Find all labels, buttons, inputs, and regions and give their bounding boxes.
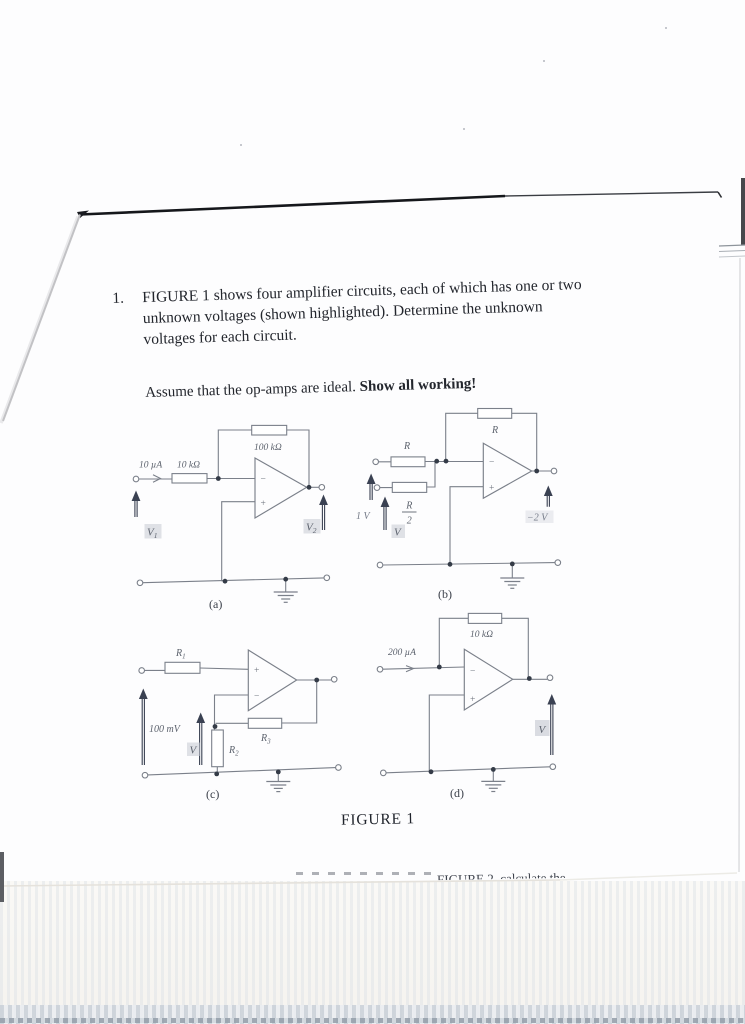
label-vin: 100 mV	[149, 724, 182, 735]
terminal-circle	[381, 770, 387, 776]
label-r-feedback: R	[491, 425, 498, 436]
problem-number: 1.	[112, 287, 143, 309]
junction-dot	[510, 562, 515, 567]
terminal-circle	[137, 580, 143, 586]
circuit-c: + − 100 mV V R1 R2 R3 (c)	[130, 638, 350, 808]
label-r-in: 10 kΩ	[177, 461, 200, 471]
circuit-b-wires	[379, 413, 555, 578]
label-1v: 1 V	[356, 511, 372, 522]
page-left-edge	[3, 215, 80, 422]
terminal-circle	[142, 772, 148, 778]
terminal-circle	[319, 485, 325, 491]
voltage-arrow-output	[544, 486, 553, 507]
resistor-feedback	[478, 409, 512, 419]
paper-stack-edge-dark	[741, 178, 745, 245]
opamp-plus: +	[261, 499, 266, 509]
label-r2: R2	[228, 745, 239, 758]
terminal-circle	[377, 562, 383, 568]
figure-caption: FIGURE 1	[341, 810, 415, 830]
opamp-plus: +	[470, 695, 475, 705]
junction-dot	[283, 577, 288, 582]
scan-left-sliver	[0, 852, 4, 902]
opamp-minus: −	[470, 667, 475, 677]
fraction-numerator: R	[405, 501, 412, 512]
terminal-circle	[139, 668, 145, 674]
opamp-plus: +	[254, 666, 259, 676]
junction-dot	[534, 469, 539, 474]
terminal-circle	[550, 764, 556, 770]
junction-dot	[434, 459, 439, 464]
assumption-bold: Show all working!	[359, 376, 476, 395]
resistor-r3	[248, 718, 281, 728]
terminal-circle	[551, 468, 557, 474]
page-bottom-edge	[0, 880, 560, 886]
junction-dot	[276, 770, 281, 775]
circuit-a: − + V1 V2 10 µA 10 kΩ 100 kΩ (a)	[115, 405, 350, 617]
label-r1: R1	[175, 648, 186, 661]
label-r-feedback: 100 kΩ	[254, 443, 282, 453]
page-left-edge-glow	[1, 217, 78, 424]
junction-dot	[213, 724, 218, 729]
junction-dot	[448, 562, 453, 567]
junction-dot	[429, 769, 434, 774]
resistor-r2	[212, 730, 224, 767]
resistor-feedback	[252, 425, 287, 435]
page-right-edge	[739, 258, 740, 872]
voltage-arrow-node	[196, 713, 205, 766]
voltage-arrow-inner	[381, 497, 390, 531]
junction-dot	[214, 772, 219, 777]
page-top-edge-shadow-right	[505, 192, 718, 196]
label-r3: R3	[260, 733, 271, 746]
circuit-d-wires	[383, 618, 550, 781]
fraction-denominator: 2	[407, 516, 412, 527]
junction-dot	[307, 485, 312, 490]
cutoff-text-noise	[296, 872, 434, 875]
junction-dot	[216, 476, 221, 481]
terminal-circle	[324, 575, 330, 581]
terminal-circle	[555, 560, 561, 566]
ground-icon	[500, 578, 524, 588]
circuit-d: − + V 200 µA 10 kΩ (d)	[375, 603, 560, 808]
opamp-plus: +	[489, 484, 494, 494]
circuit-a-tag: (a)	[209, 597, 222, 611]
circuit-a-wires	[139, 430, 324, 592]
label-r-feedback: 10 kΩ	[470, 630, 493, 640]
junction-dot	[223, 579, 228, 584]
circuit-d-tag: (d)	[450, 786, 464, 800]
resistor-input	[172, 474, 207, 483]
page-top-edge-shadow	[80, 196, 505, 215]
label-vout: −2 V	[527, 513, 549, 524]
terminal-circle	[336, 765, 342, 771]
voltage-arrow-v1	[132, 491, 141, 518]
terminal-circle	[547, 675, 553, 681]
junction-dot	[444, 459, 449, 464]
terminal-circle	[331, 677, 337, 683]
junction-dot	[314, 678, 319, 683]
voltage-arrow-input	[139, 689, 148, 766]
terminal-circle	[133, 476, 139, 482]
circuit-c-tag: (c)	[206, 787, 219, 801]
terminal-circle	[373, 459, 379, 465]
resistor-r1	[165, 662, 200, 673]
ground-icon	[274, 592, 298, 602]
paper-stack-line	[719, 256, 745, 257]
label-r-half-fraction: R 2	[402, 501, 417, 527]
opamp-triangle	[255, 458, 307, 518]
paper-stack-line	[719, 245, 745, 246]
opamp-minus: −	[489, 458, 494, 468]
label-r-input: R	[403, 441, 410, 452]
circuit-b: − + 1 V V −2 V R R R 2 (b)	[350, 395, 565, 610]
opamp-minus: −	[261, 475, 266, 485]
terminal-circle	[374, 485, 380, 491]
opamp-minus: −	[254, 692, 259, 702]
junction-dot	[527, 676, 532, 681]
page-corner-tick	[718, 192, 722, 198]
circuit-b-tag: (b)	[438, 587, 452, 601]
junction-dot	[491, 767, 496, 772]
resistor-r-half	[392, 482, 426, 492]
label-current: 200 µA	[388, 648, 416, 658]
paper-stack-line	[719, 251, 745, 252]
resistor-r-top	[391, 457, 425, 467]
ground-icon	[266, 782, 290, 792]
resistor-feedback	[468, 613, 501, 623]
label-current: 10 µA	[139, 461, 162, 471]
junction-dot	[437, 665, 442, 670]
terminal-circle	[377, 667, 383, 673]
ground-icon	[481, 781, 505, 791]
